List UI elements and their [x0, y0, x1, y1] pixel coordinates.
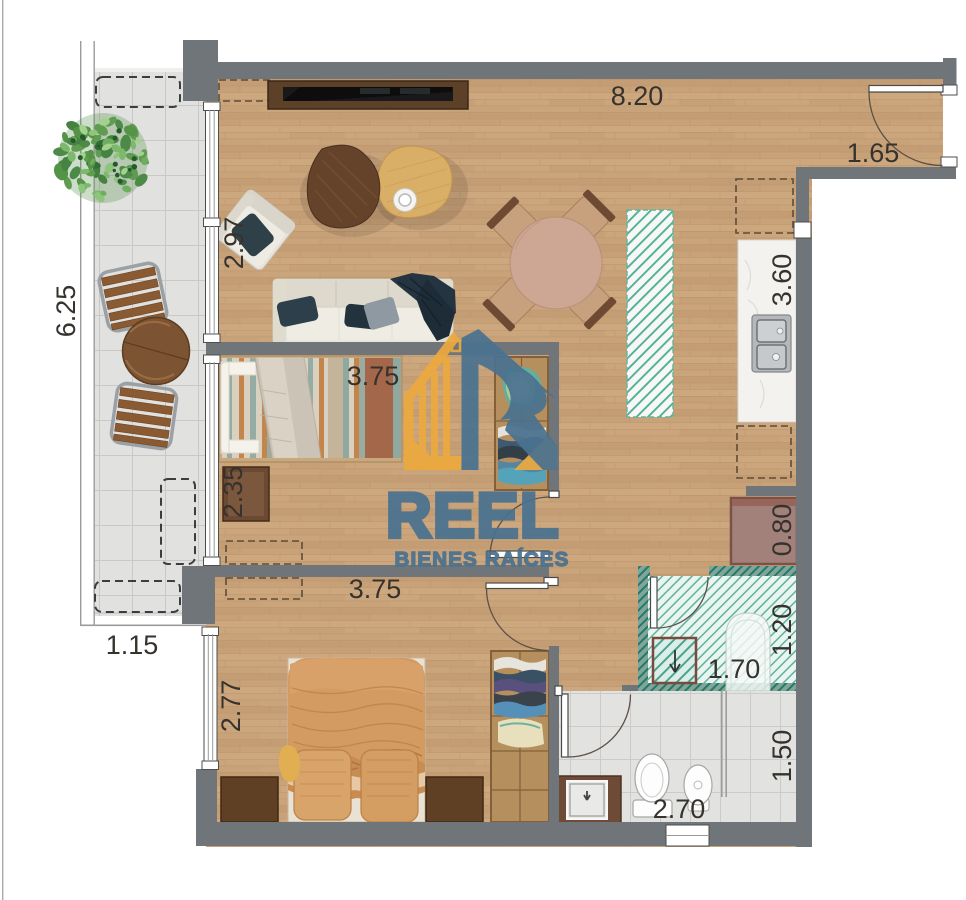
svg-text:BIENES RAÍCES: BIENES RAÍCES	[394, 548, 569, 571]
svg-text:1.50: 1.50	[767, 730, 797, 783]
svg-text:3.60: 3.60	[767, 254, 797, 307]
svg-text:2.77: 2.77	[216, 680, 246, 733]
svg-text:3.75: 3.75	[347, 361, 400, 391]
svg-text:2.35: 2.35	[218, 466, 248, 519]
svg-text:1.70: 1.70	[708, 654, 761, 684]
svg-text:6.25: 6.25	[51, 285, 81, 338]
svg-text:1.20: 1.20	[767, 604, 797, 657]
svg-text:2.70: 2.70	[653, 794, 706, 824]
svg-text:1.65: 1.65	[847, 138, 900, 168]
svg-text:2.97: 2.97	[219, 217, 249, 270]
svg-text:1.15: 1.15	[106, 630, 159, 660]
svg-text:8.20: 8.20	[611, 81, 664, 111]
svg-text:0.80: 0.80	[767, 504, 797, 557]
svg-text:REEL: REEL	[386, 481, 560, 551]
svg-text:3.75: 3.75	[349, 574, 402, 604]
